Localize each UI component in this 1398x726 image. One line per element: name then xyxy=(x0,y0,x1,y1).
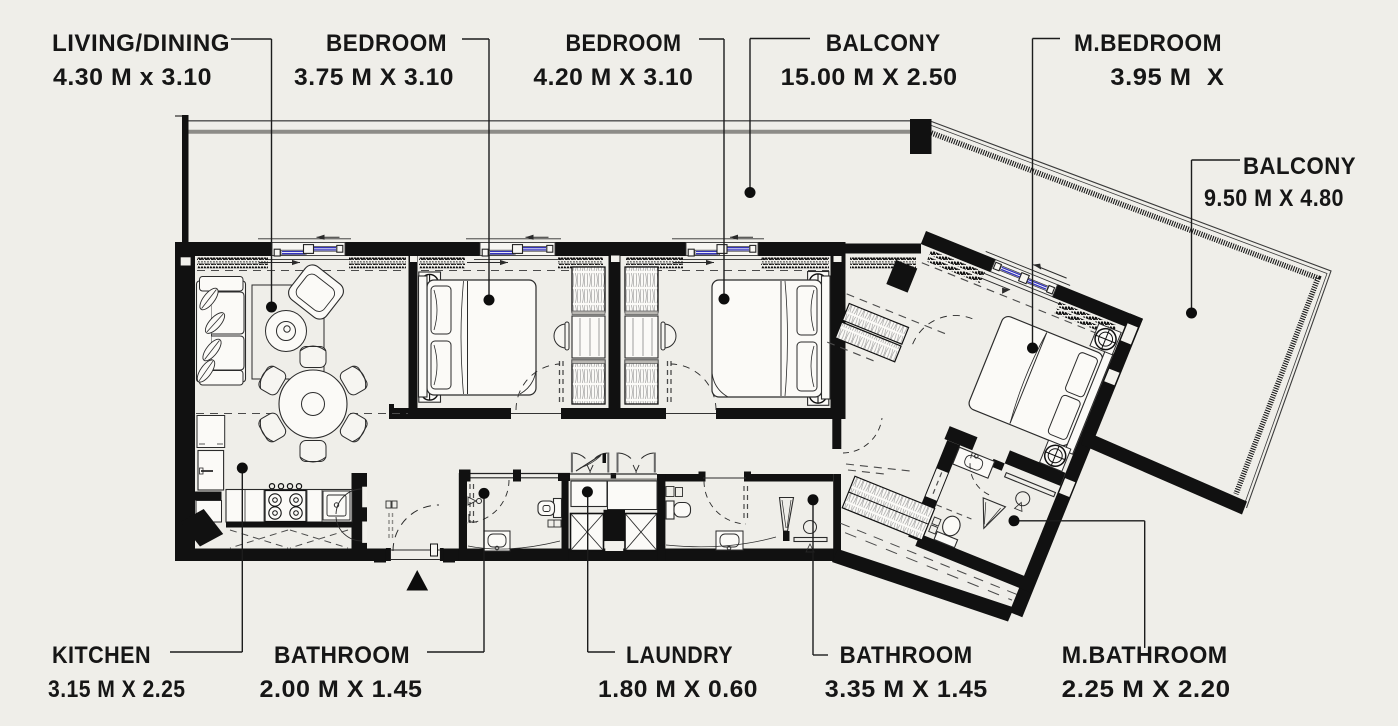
svg-text:M.BEDROOM: M.BEDROOM xyxy=(1074,30,1222,57)
svg-text:3.35 M X 1.45: 3.35 M X 1.45 xyxy=(825,676,988,703)
svg-text:15.00 M X 2.50: 15.00 M X 2.50 xyxy=(781,64,958,91)
svg-text:2.00 M X 1.45: 2.00 M X 1.45 xyxy=(260,676,423,703)
svg-text:M.BATHROOM: M.BATHROOM xyxy=(1062,642,1228,669)
svg-text:BALCONY: BALCONY xyxy=(1243,153,1356,180)
svg-text:KITCHEN: KITCHEN xyxy=(52,642,151,669)
svg-text:4.30 M x 3.10: 4.30 M x 3.10 xyxy=(53,64,212,91)
svg-text:BATHROOM: BATHROOM xyxy=(274,642,410,669)
svg-text:3.95 M X: 3.95 M X xyxy=(1110,64,1224,91)
svg-text:1.80 M X 0.60: 1.80 M X 0.60 xyxy=(598,676,758,703)
svg-text:3.15 M X 2.25: 3.15 M X 2.25 xyxy=(48,676,186,703)
svg-text:BEDROOM: BEDROOM xyxy=(566,30,682,57)
svg-text:LAUNDRY: LAUNDRY xyxy=(626,642,733,669)
svg-text:BATHROOM: BATHROOM xyxy=(840,642,973,669)
svg-text:4.20 M X 3.10: 4.20 M X 3.10 xyxy=(533,64,693,91)
svg-text:9.50 M X 4.80: 9.50 M X 4.80 xyxy=(1204,185,1344,212)
svg-text:BEDROOM: BEDROOM xyxy=(326,30,447,57)
svg-text:LIVING/DINING: LIVING/DINING xyxy=(52,30,230,57)
svg-text:3.75 M X 3.10: 3.75 M X 3.10 xyxy=(294,64,454,91)
svg-text:2.25 M X 2.20: 2.25 M X 2.20 xyxy=(1062,676,1231,703)
svg-text:BALCONY: BALCONY xyxy=(826,30,941,57)
